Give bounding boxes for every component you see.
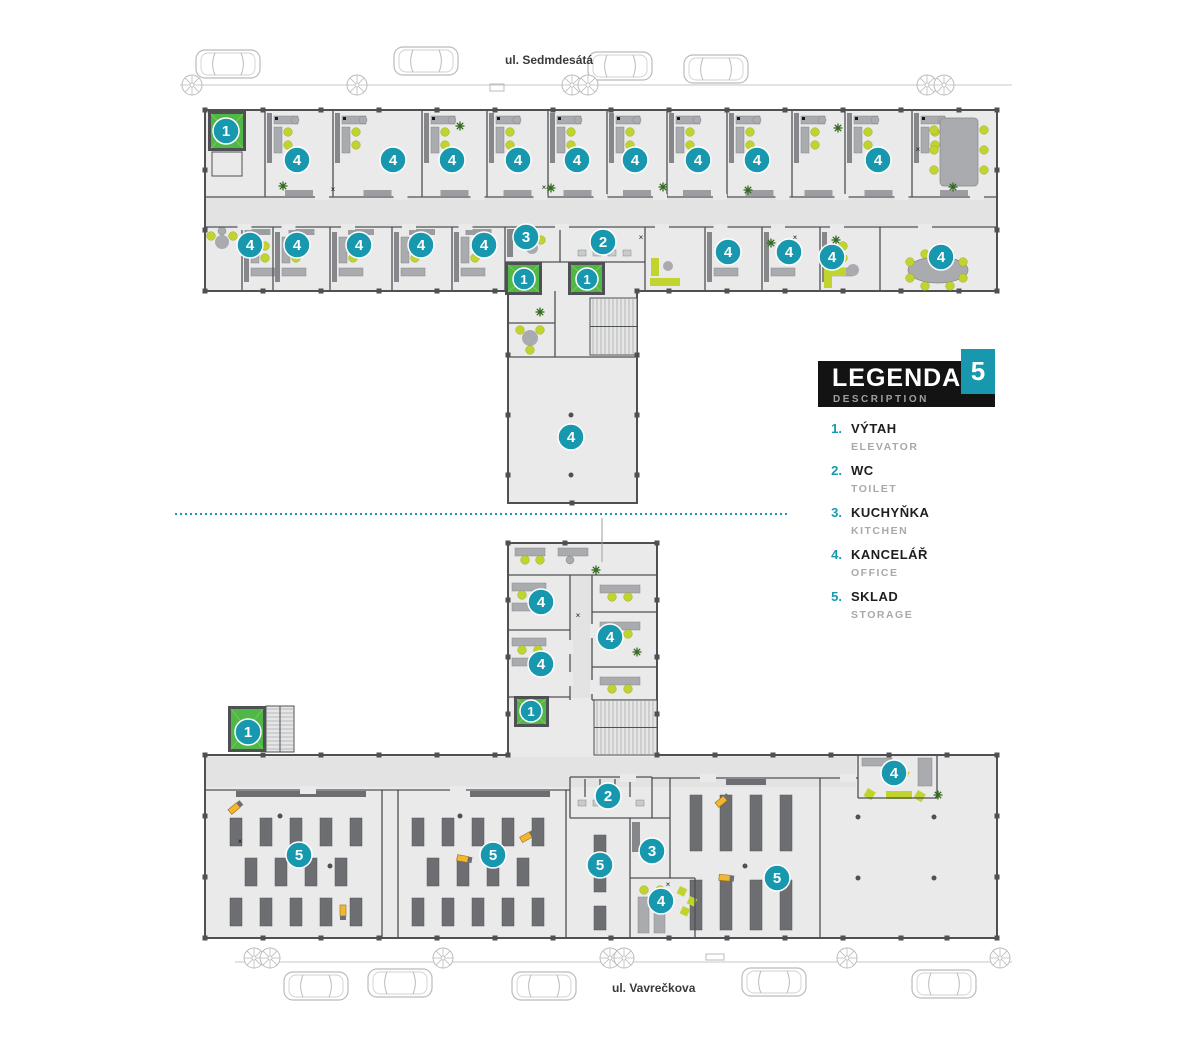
plant-icon [744,186,753,195]
svg-text:4: 4 [828,249,837,266]
svg-text:4: 4 [417,237,426,254]
plant-icon [592,566,601,575]
svg-text:3: 3 [522,229,530,246]
svg-text:4: 4 [890,765,899,782]
svg-text:4: 4 [631,152,640,169]
plant-icon [279,182,288,191]
svg-text:4: 4 [293,152,302,169]
street-label-top: ul. Sedmdesátá [505,53,593,67]
svg-text:4: 4 [874,152,883,169]
door-x-mark: × [666,880,671,889]
floorplan-canvas: ×××××××× 1444444444444443244441144441125… [0,0,1200,1040]
legend-item-number: 5. [822,589,842,621]
room-badge-4: 4 [505,147,531,173]
car-icon [284,972,348,1000]
plant-icon [633,648,642,657]
floorplan-drawing: ×××××××× 1444444444444443244441144441125… [0,0,1200,1040]
tree-icon [347,75,367,95]
room-badge-4: 4 [237,232,263,258]
tree-icon [182,75,202,95]
room-badge-1: 1 [520,700,542,722]
legend-item-number: 1. [822,421,842,453]
legend-item-label: WC [851,463,897,478]
car-icon [512,972,576,1000]
tree-icon [578,75,598,95]
tree-icon [614,948,634,968]
room-badge-4: 4 [439,147,465,173]
room-badge-1: 1 [235,719,261,745]
door-x-mark: × [331,185,336,194]
plant-icon [767,239,776,248]
room-badge-4: 4 [685,147,711,173]
svg-text:4: 4 [448,152,457,169]
room-badge-4: 4 [380,147,406,173]
legend-item-number: 4. [822,547,842,579]
legend-item-number: 3. [822,505,842,537]
room-badge-4: 4 [471,232,497,258]
svg-text:4: 4 [537,656,546,673]
room-badge-4: 4 [715,239,741,265]
plant-icon [949,183,958,192]
plant-icon [547,184,556,193]
plant-icon [832,236,841,245]
legend-item-kuchyňka: 3.KUCHYŇKAKITCHEN [822,505,1012,537]
room-badge-4: 4 [346,232,372,258]
legend-item-sublabel: STORAGE [851,609,913,621]
room-badge-3: 3 [513,224,539,250]
svg-text:1: 1 [222,123,230,140]
car-icon [368,969,432,997]
plant-icon [456,122,465,131]
svg-text:4: 4 [937,249,946,266]
room-badge-5: 5 [587,852,613,878]
legend-items: 1.VÝTAHELEVATOR2.WCTOILET3.KUCHYŇKAKITCH… [822,421,1012,631]
room-badge-4: 4 [284,147,310,173]
door-x-mark: × [916,145,921,154]
car-icon [912,970,976,998]
room-badge-2: 2 [595,783,621,809]
legend-item-label: VÝTAH [851,421,918,436]
room-badge-4: 4 [408,232,434,258]
forklift-icon [340,905,346,920]
room-badge-4: 4 [928,244,954,270]
svg-text:5: 5 [596,857,604,874]
plant-icon [934,791,943,800]
door-x-mark: × [238,837,243,846]
room-badge-4: 4 [564,147,590,173]
legend-item-sublabel: OFFICE [851,567,928,579]
svg-text:4: 4 [514,152,523,169]
svg-text:4: 4 [753,152,762,169]
legend-item-sublabel: KITCHEN [851,525,929,537]
legend-item-sublabel: ELEVATOR [851,441,918,453]
legend-item-sublabel: TOILET [851,483,897,495]
svg-text:3: 3 [648,843,656,860]
door-x-mark: × [576,611,581,620]
svg-text:4: 4 [724,244,733,261]
street-label-bottom: ul. Vavrečkova [612,981,696,995]
plant-icon [834,124,843,133]
car-icon [588,52,652,80]
room-badge-5: 5 [480,842,506,868]
plant-icon [536,308,545,317]
svg-text:1: 1 [527,704,534,719]
svg-text:2: 2 [604,788,612,805]
svg-text:4: 4 [355,237,364,254]
legend-subtitle: DESCRIPTION [833,394,995,405]
svg-text:4: 4 [537,594,546,611]
svg-text:4: 4 [657,893,666,910]
svg-text:4: 4 [606,629,615,646]
svg-text:4: 4 [293,237,302,254]
room-badge-1: 1 [513,268,535,290]
tree-icon [837,948,857,968]
svg-text:4: 4 [480,237,489,254]
room-badge-4: 4 [528,589,554,615]
svg-text:1: 1 [244,724,252,741]
room-badge-4: 4 [865,147,891,173]
room-badge-4: 4 [881,760,907,786]
svg-text:1: 1 [520,272,527,287]
legend-item-wc: 2.WCTOILET [822,463,1012,495]
room-badge-4: 4 [744,147,770,173]
room-badge-5: 5 [286,842,312,868]
car-icon [196,50,260,78]
room-badge-2: 2 [590,229,616,255]
room-badge-1: 1 [576,268,598,290]
tree-icon [260,948,280,968]
legend-item-kancelář: 4.KANCELÁŘOFFICE [822,547,1012,579]
svg-text:4: 4 [567,429,576,446]
tree-icon [990,948,1010,968]
room-badge-4: 4 [528,651,554,677]
svg-text:4: 4 [389,152,398,169]
door-x-mark: × [639,233,644,242]
car-icon [684,55,748,83]
plant-icon [659,183,668,192]
room-badge-4: 4 [776,239,802,265]
svg-text:4: 4 [785,244,794,261]
svg-text:5: 5 [773,870,781,887]
door-x-mark: × [542,183,547,192]
room-badge-4: 4 [284,232,310,258]
legend-floor-number: 5 [961,349,995,394]
legend-panel: LEGENDA DESCRIPTION 5 1.VÝTAHELEVATOR2.W… [818,349,1018,619]
svg-text:2: 2 [599,234,607,251]
svg-text:4: 4 [573,152,582,169]
legend-item-label: KUCHYŇKA [851,505,929,520]
svg-text:4: 4 [246,237,255,254]
room-badge-1: 1 [213,118,239,144]
room-badge-4: 4 [648,888,674,914]
svg-text:5: 5 [295,847,303,864]
room-badge-4: 4 [819,244,845,270]
room-badge-4: 4 [597,624,623,650]
room-badge-4: 4 [622,147,648,173]
legend-item-label: SKLAD [851,589,913,604]
tree-icon [433,948,453,968]
room-badge-3: 3 [639,838,665,864]
svg-text:5: 5 [489,847,497,864]
legend-item-sklad: 5.SKLADSTORAGE [822,589,1012,621]
room-badge-4: 4 [558,424,584,450]
tree-icon [934,75,954,95]
legend-item-number: 2. [822,463,842,495]
legend-item-výtah: 1.VÝTAHELEVATOR [822,421,1012,453]
svg-text:4: 4 [694,152,703,169]
car-icon [394,47,458,75]
room-badge-5: 5 [764,865,790,891]
legend-item-label: KANCELÁŘ [851,547,928,562]
car-icon [742,968,806,996]
svg-text:1: 1 [583,272,590,287]
